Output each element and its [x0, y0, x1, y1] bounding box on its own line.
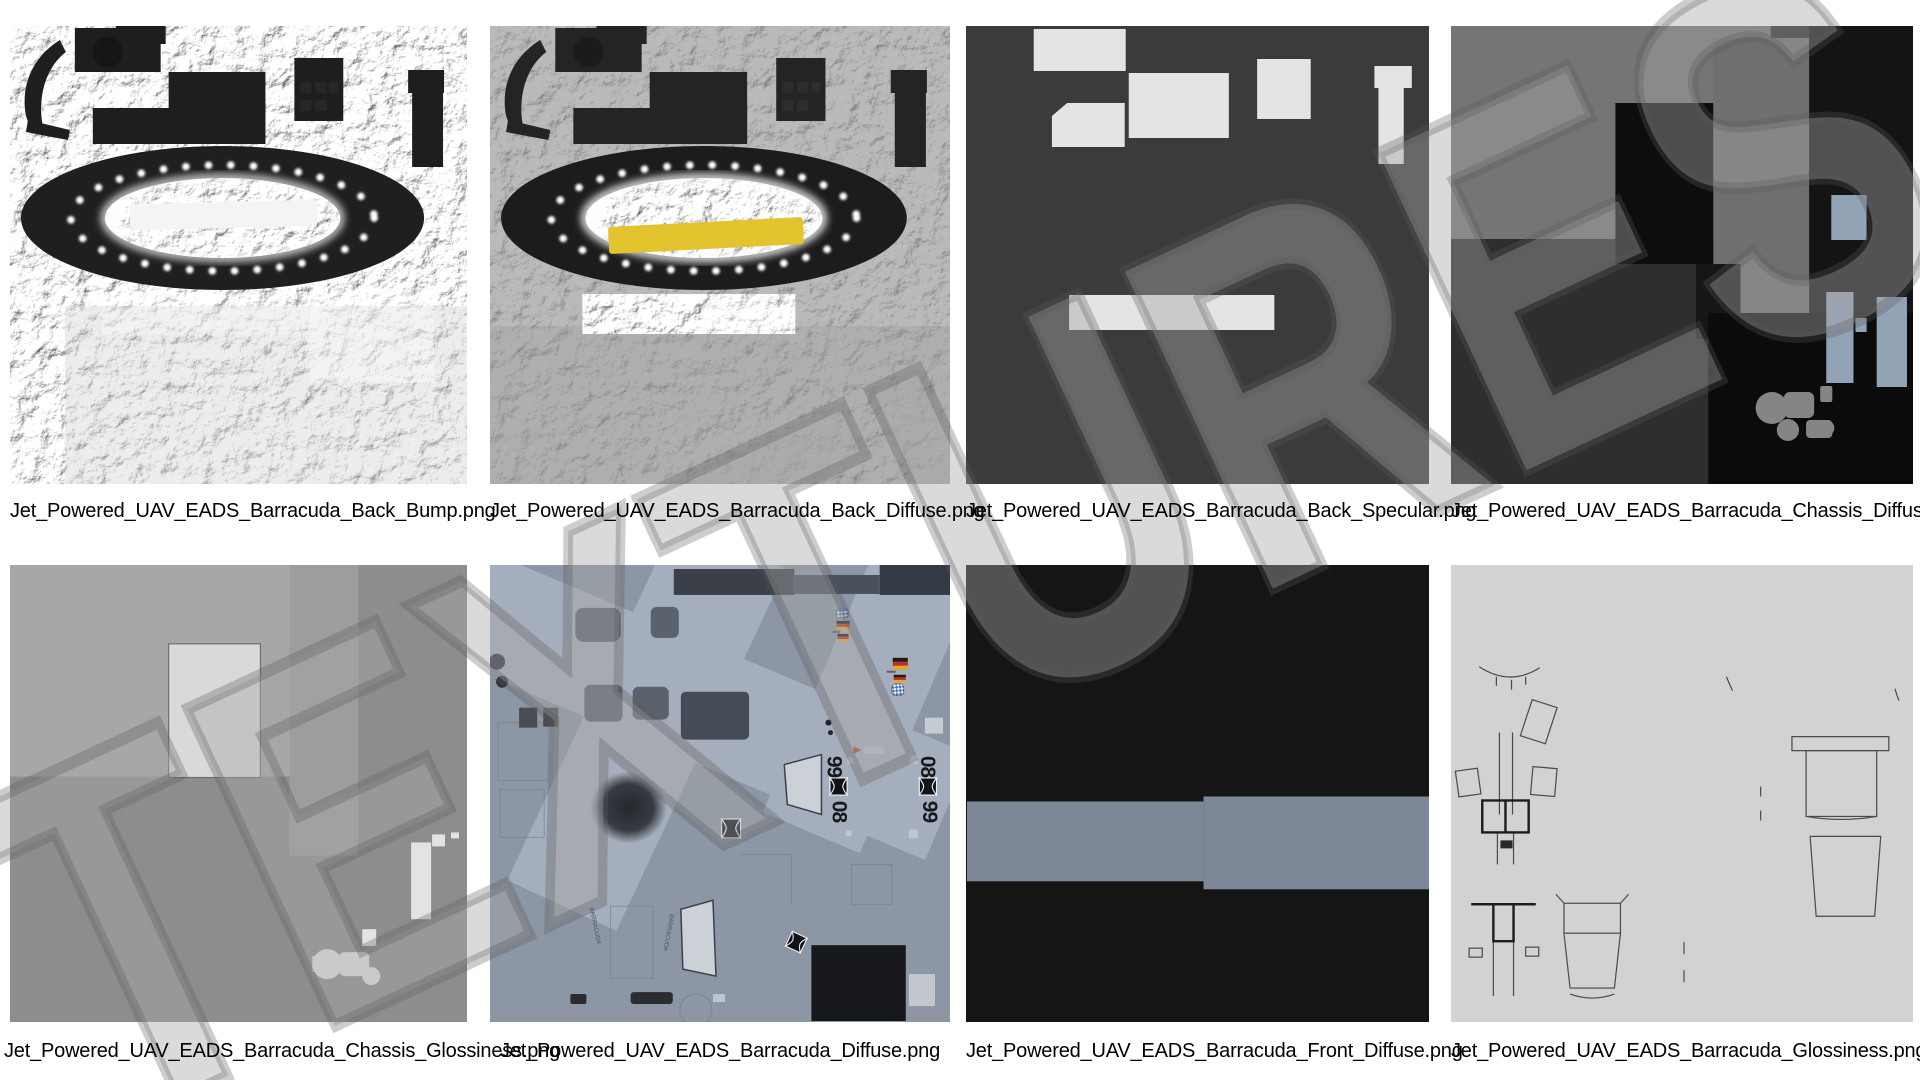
- bavarian-check-icon: [892, 684, 904, 696]
- texture-thumbnail-back-diffuse: [490, 26, 950, 484]
- black-background: [966, 565, 1429, 1022]
- black-island: [811, 945, 905, 1021]
- slate-band-right: [1204, 796, 1429, 889]
- texture-filename-glossiness: Jet_Powered_UAV_EADS_Barracuda_Glossines…: [1451, 1038, 1913, 1064]
- tail-number: 99: [918, 801, 941, 823]
- german-flag-icon: [893, 658, 908, 670]
- white-bar: [129, 200, 317, 231]
- white-rect-island: [169, 644, 261, 778]
- german-flag-icon: [894, 675, 906, 683]
- slate-band-left: [967, 801, 1204, 881]
- iron-cross-icon: [722, 819, 741, 838]
- bavarian-check-icon: [837, 609, 849, 618]
- texture-thumbnail-glossiness: [1451, 565, 1913, 1022]
- texture-thumbnail-chassis-diffuse: [1451, 26, 1913, 484]
- back-diffuse-texture-image: [490, 26, 950, 484]
- german-flag-icon: [837, 621, 850, 630]
- texture-filename-back-bump: Jet_Powered_UAV_EADS_Barracuda_Back_Bump…: [10, 498, 467, 524]
- texture-preview-sheet: 99 08 08 99 BARRACUDA BARRACUDA: [0, 0, 1920, 1080]
- back-bump-texture-image: [10, 26, 467, 484]
- tail-number: 08: [916, 756, 939, 779]
- glossiness-texture-image: [1451, 565, 1913, 1022]
- texture-filename-chassis-glossiness: Jet_Powered_UAV_EADS_Barracuda_Chassis_G…: [2, 1038, 469, 1064]
- iron-cross-icon: [830, 778, 847, 795]
- texture-thumbnail-front-diffuse: [966, 565, 1429, 1022]
- tail-number: 08: [827, 801, 850, 824]
- texture-filename-diffuse: Jet_Powered_UAV_EADS_Barracuda_Diffuse.p…: [490, 1038, 950, 1064]
- chassis-diffuse-texture-image: [1451, 26, 1913, 484]
- back-specular-texture-image: [966, 26, 1429, 484]
- soft-dark-blob: [590, 772, 666, 844]
- texture-filename-back-specular: Jet_Powered_UAV_EADS_Barracuda_Back_Spec…: [966, 498, 1429, 524]
- light-gray-background: [1451, 565, 1913, 1022]
- diffuse-texture-image: 99 08 08 99 BARRACUDA BARRACUDA: [490, 565, 950, 1022]
- iron-cross-icon: [919, 778, 936, 795]
- light-trapezoid: [681, 900, 716, 976]
- chassis-glossiness-texture-image: [10, 565, 467, 1022]
- texture-thumbnail-back-specular: [966, 26, 1429, 484]
- texture-thumbnail-chassis-glossiness: [10, 565, 467, 1022]
- light-trapezoid: [784, 755, 821, 815]
- texture-thumbnail-back-bump: [10, 26, 467, 484]
- texture-filename-front-diffuse: Jet_Powered_UAV_EADS_Barracuda_Front_Dif…: [966, 1038, 1429, 1064]
- tail-number: 99: [822, 756, 845, 778]
- german-flag-icon: [838, 634, 849, 642]
- front-diffuse-texture-image: [966, 565, 1429, 1022]
- texture-filename-chassis-diffuse: Jet_Powered_UAV_EADS_Barracuda_Chassis_D…: [1451, 498, 1913, 524]
- texture-thumbnail-diffuse: 99 08 08 99 BARRACUDA BARRACUDA: [490, 565, 950, 1022]
- texture-filename-back-diffuse: Jet_Powered_UAV_EADS_Barracuda_Back_Diff…: [490, 498, 950, 524]
